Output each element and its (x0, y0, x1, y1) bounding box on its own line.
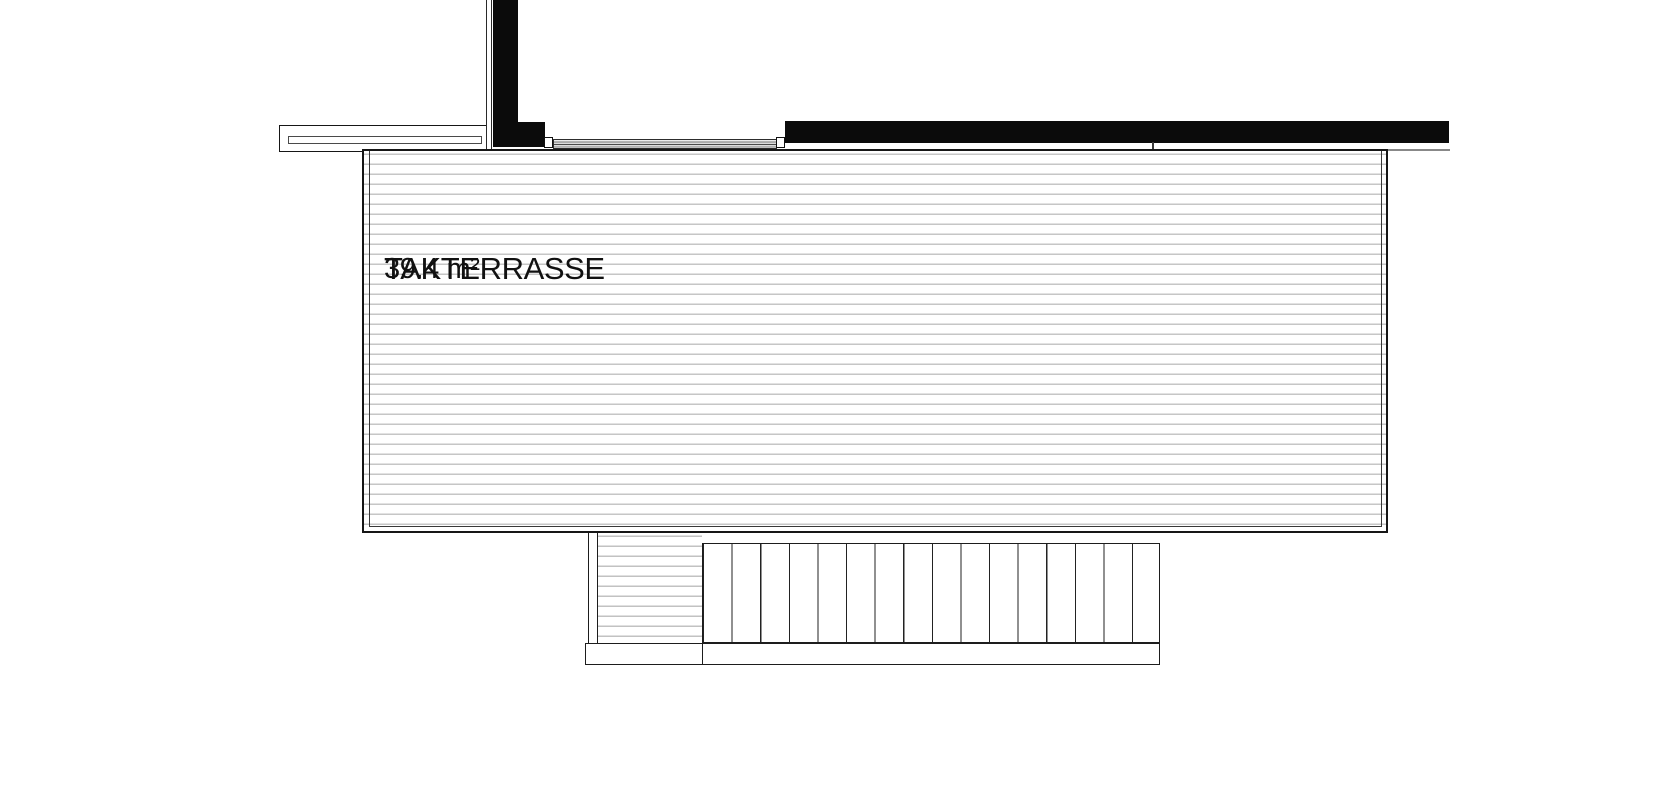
door-jamb-right (776, 137, 785, 148)
stair-base-divider (702, 644, 703, 664)
exterior-wall-vertical (493, 0, 518, 147)
wall-corner-joint-line (486, 0, 492, 152)
door-jamb-left (544, 137, 553, 148)
terrace-inner-border (369, 151, 1382, 527)
stair-landing-deck (598, 533, 702, 643)
stair-base-strip (585, 643, 1160, 665)
floor-plan-canvas: TAKTERRASSE 39.4 m² (0, 0, 1670, 800)
room-area-label: 39.4 m² (384, 251, 480, 287)
staircase-treads (702, 543, 1160, 643)
glass-railing (279, 125, 487, 152)
stair-side-wall (588, 533, 598, 643)
roof-edge-line (1388, 149, 1450, 151)
railing-inner-panel (288, 136, 482, 144)
sliding-door-track (553, 139, 777, 149)
terrace-deck: TAKTERRASSE 39.4 m² (362, 149, 1388, 533)
exterior-wall-corner-foot (518, 122, 545, 147)
exterior-wall-top (785, 121, 1449, 143)
